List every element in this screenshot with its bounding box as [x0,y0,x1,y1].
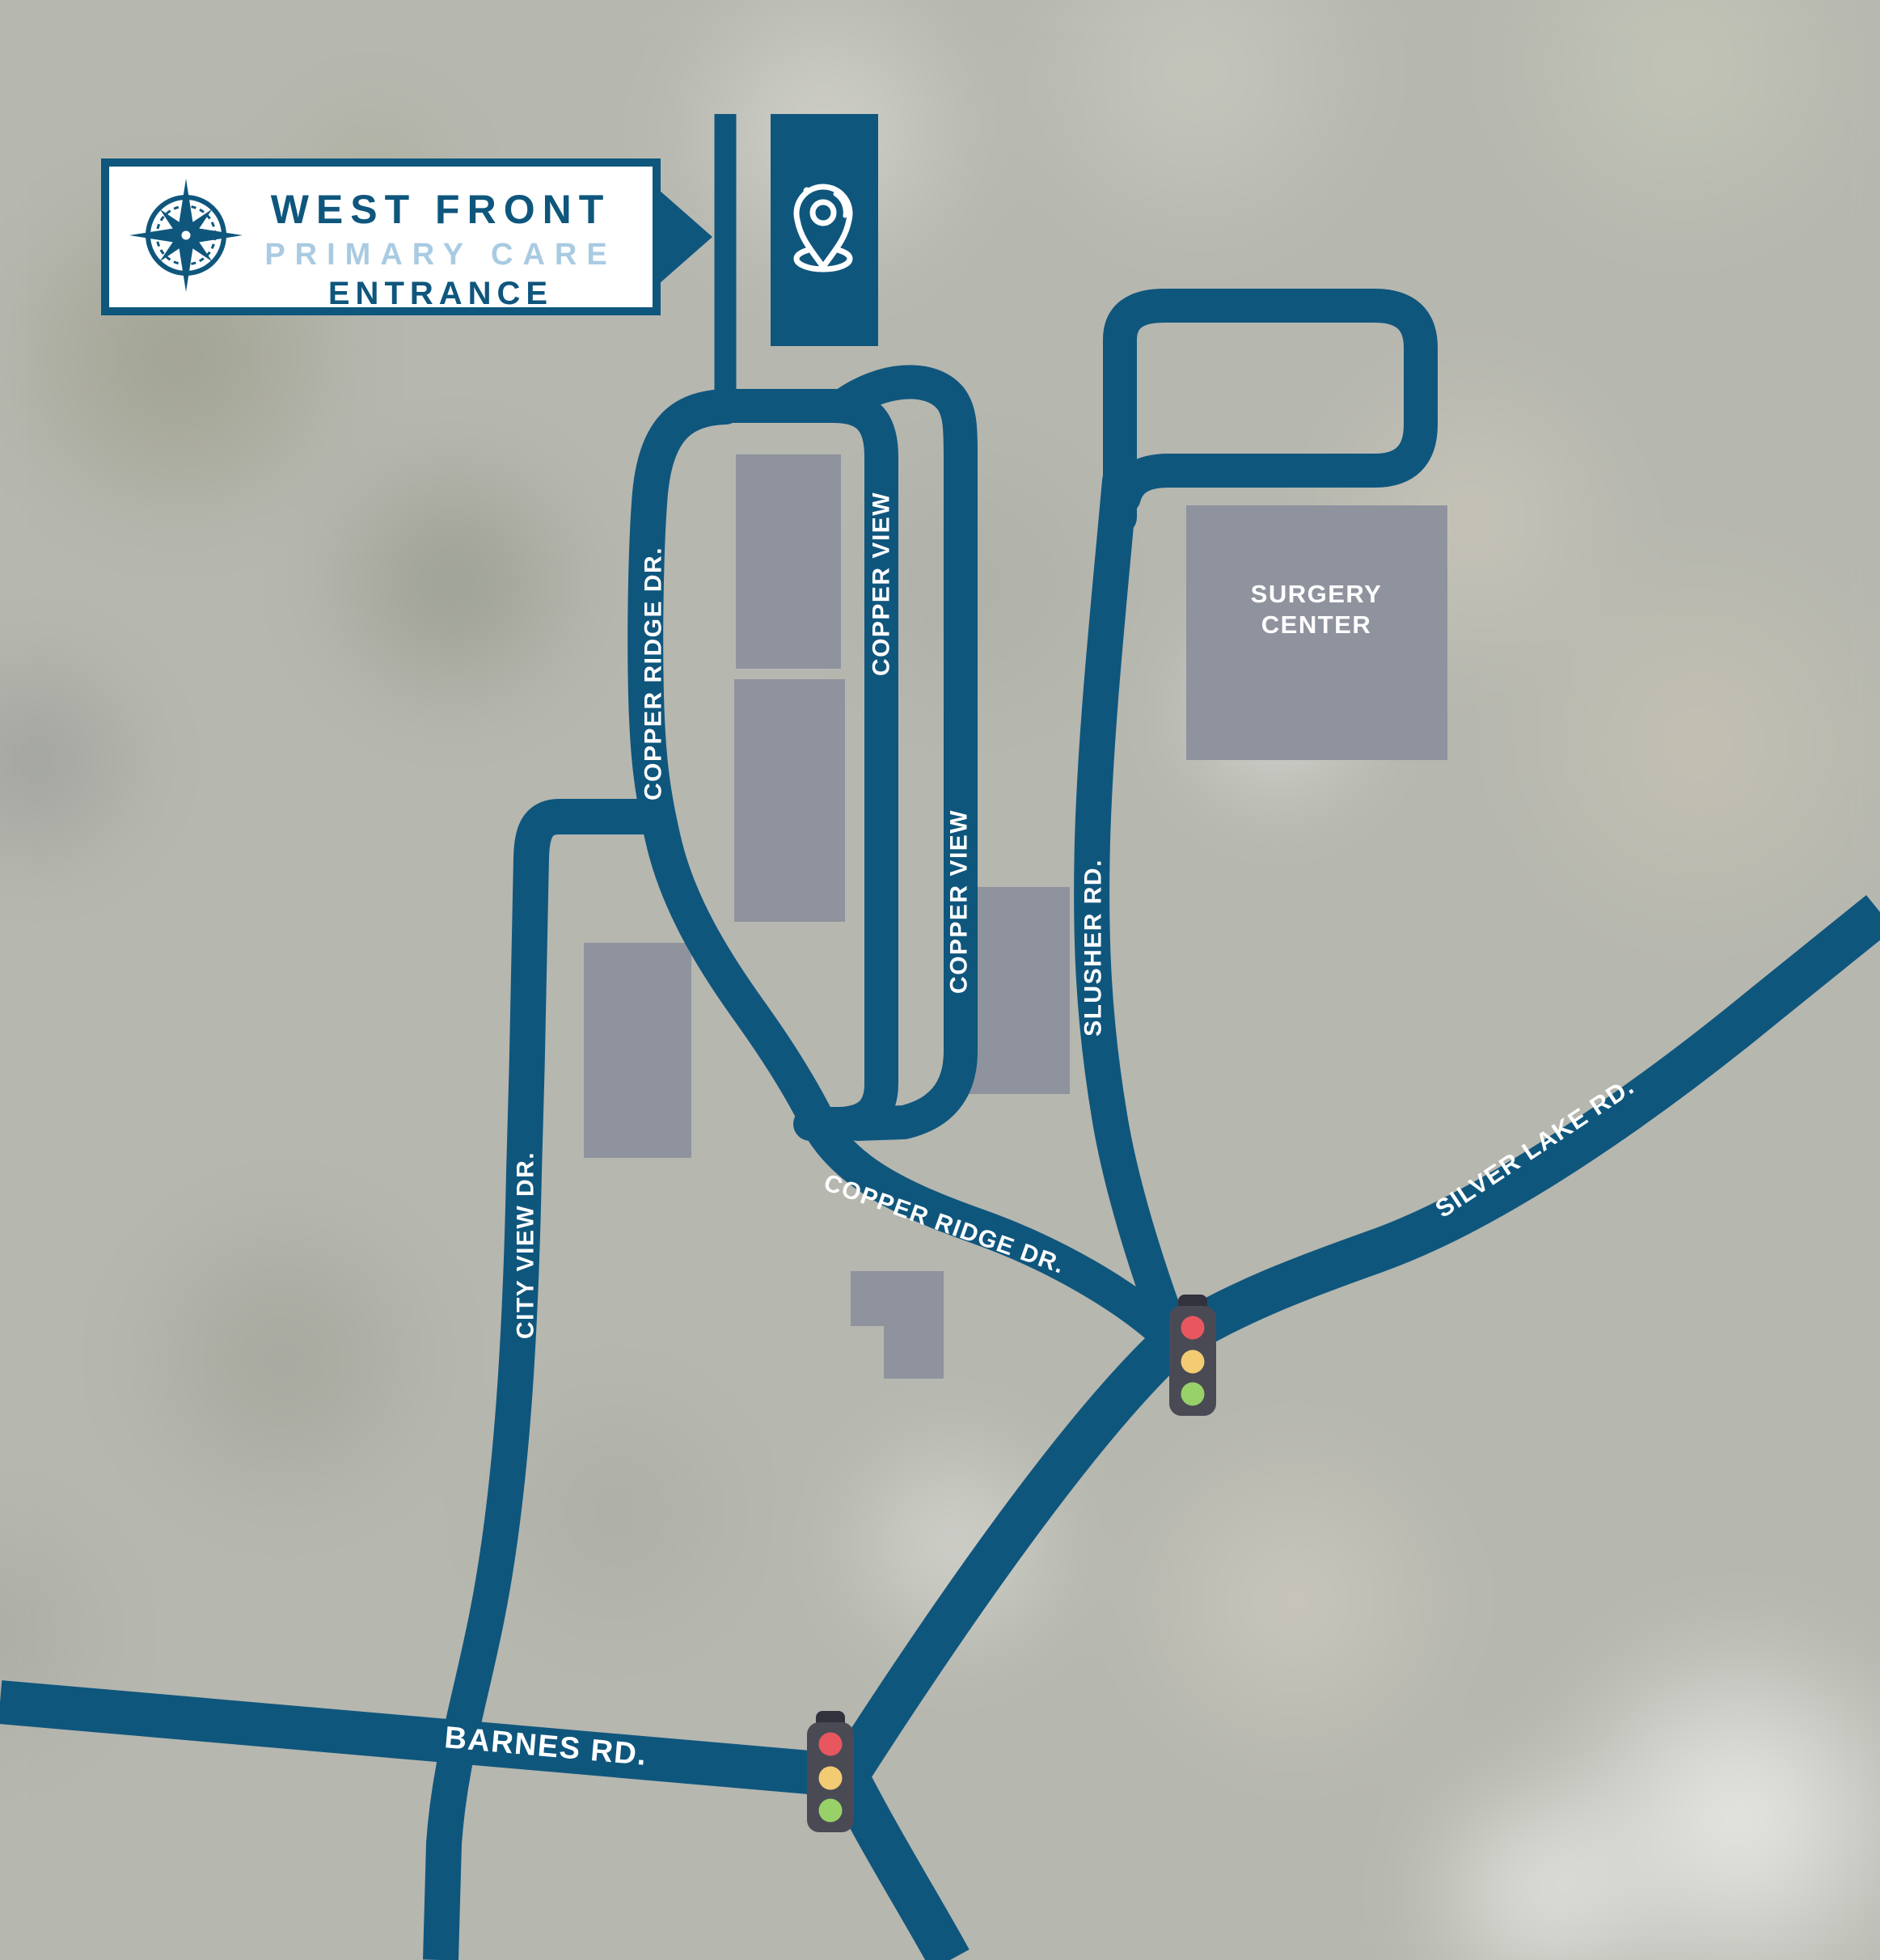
road-silver-lake-rd-exit [847,1776,950,1960]
road-label-copper-view-upper: COPPER VIEW [868,492,895,676]
traffic-light-icon [807,1711,854,1832]
building [734,679,845,922]
roads-group [0,114,1880,1960]
road-silver-lake-rd-south [847,1341,1174,1776]
sign-subtitle: PRIMARY CARE [230,238,651,272]
road-label-copper-view-lower: COPPER VIEW [946,809,973,994]
entrance-sign: WEST FRONT PRIMARY CARE ENTRANCE [101,158,661,315]
traffic-light-icon [1169,1295,1216,1416]
road-label-slusher-rd: SLUSHER RD. [1080,859,1107,1037]
entrance-sign-text: WEST FRONT PRIMARY CARE ENTRANCE [230,167,651,307]
road-copper-view-outer [845,382,961,1124]
surgery-center-line1: SURGERY [1251,580,1383,608]
sign-title: WEST FRONT [230,186,651,233]
road-label-copper-ridge-dr-upper: COPPER RIDGE DR. [640,547,667,800]
destination-marker [771,114,878,346]
building-l-shaped [851,1271,944,1379]
sign-entrance-label: ENTRANCE [230,276,651,312]
building [736,454,841,669]
surgery-center-line2: CENTER [1261,610,1371,639]
road-label-copper-ridge-dr-lower: COPPER RIDGE DR. [820,1169,1068,1279]
building [965,887,1070,1094]
map-canvas: COPPER RIDGE DR. COPPER VIEW COPPER VIEW… [0,0,1880,1960]
building [584,943,691,1158]
entrance-sign-arrow [659,190,712,284]
road-barnes-rd [0,1702,847,1776]
road-surgery-loop [1120,306,1421,517]
road-label-city-view-dr: CITY VIEW DR. [513,1151,539,1339]
road-silver-lake-rd [1174,912,1880,1341]
